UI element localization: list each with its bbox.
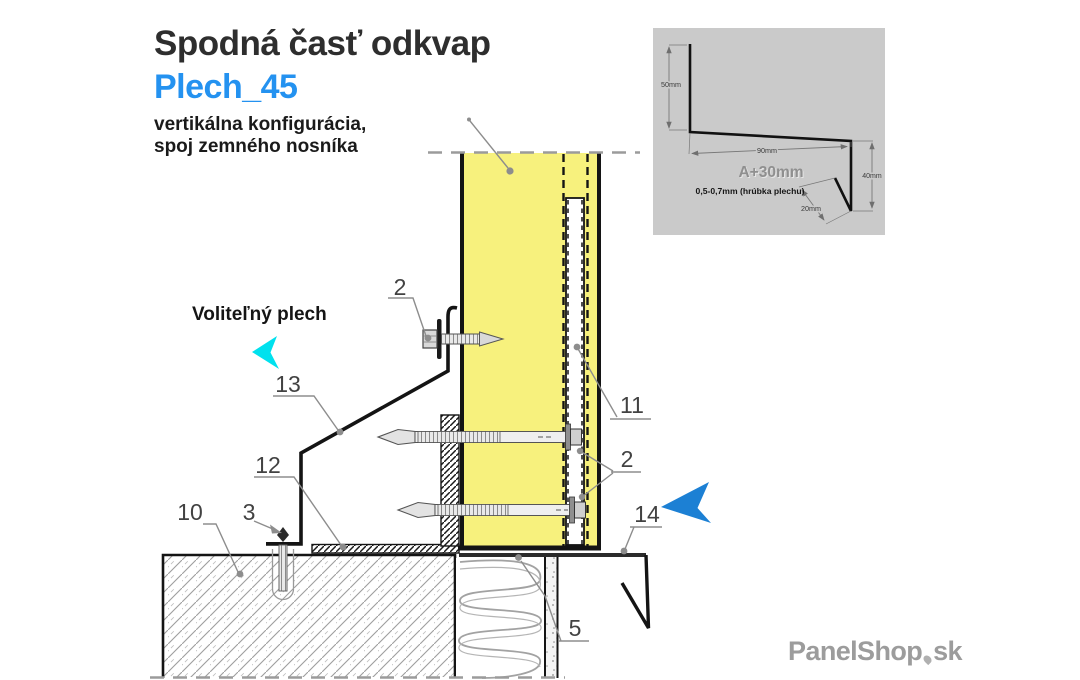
callout-14: 14 [634,501,660,527]
title-block: Spodná časť odkvap Plech_45 vertikálna k… [154,24,584,158]
concrete-base [163,555,455,678]
inset-drawing: 50mm 90mm A+30mm A+30mm 0,5-0,7mm (hrúbk… [653,28,885,235]
callout-5: 5 [569,615,582,641]
brand-name: PanelShop [788,636,922,667]
leader-arrowhead [270,525,282,534]
page-description-line1: vertikálna konfigurácia, [154,114,366,135]
page-description: vertikálna konfigurácia, spoj zemného no… [154,114,584,158]
callout-10: 10 [177,499,203,525]
inset-panel: 50mm 90mm A+30mm A+30mm 0,5-0,7mm (hrúbk… [653,28,885,235]
page-root: { "header": { "title": "Spodná časť odkv… [0,0,1080,680]
inset-dimension-lines [669,45,873,224]
inset-dim-40: 40mm [862,173,882,180]
page-title: Spodná časť odkvap [154,24,584,64]
callout-13: 13 [275,371,301,397]
optional-sheet-label: Voliteľný plech [192,304,327,326]
inset-dim-50: 50mm [661,80,681,89]
flame-icon [922,654,933,665]
callout-11: 11 [620,392,644,418]
brand-tld: sk [933,636,962,667]
inset-thickness-note: 0,5-0,7mm (hrúbka plechu) [696,186,805,196]
pointer-arrow-cyan [252,336,279,369]
brand-logo: PanelShop sk [788,636,962,667]
pointer-arrow-blue [661,482,711,523]
callout-2-right: 2 [621,446,634,472]
callout-2-top: 2 [394,274,407,300]
page-model: Plech_45 [154,68,584,106]
inset-dim-a30: A+30mm [738,164,803,181]
callout-12: 12 [255,452,281,478]
inset-dim-20: 20mm [801,204,821,213]
sealing-strip [545,556,558,678]
ground-bracket-horizontal [312,545,459,554]
page-description-line2: spoj zemného nosníka [154,136,358,157]
inset-dim-90: 90mm [757,146,777,155]
callout-3: 3 [243,499,256,525]
